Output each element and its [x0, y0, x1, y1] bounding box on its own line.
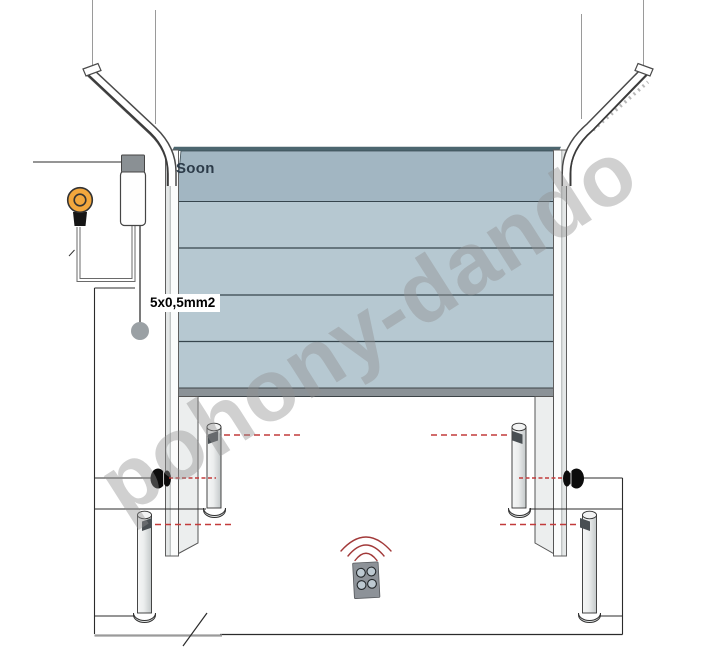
- wall-button: [131, 322, 149, 340]
- conduit-tick: [69, 250, 75, 256]
- radio-waves: [341, 537, 391, 561]
- right-curved-track: [567, 64, 654, 187]
- warning-lamp: [68, 188, 93, 226]
- photocell-post-lower-right: [579, 511, 601, 622]
- photocell-post-upper-left: [204, 423, 226, 517]
- ceiling-hanger-rods: [93, 0, 644, 124]
- drive-brand-label: Soon: [176, 160, 215, 177]
- lamp-lens-outer: [68, 188, 93, 213]
- motor-cap: [122, 155, 145, 172]
- door-top-edge: [172, 147, 561, 151]
- drive-motor-unit: [121, 155, 146, 226]
- photocell-post-lower-left: [134, 511, 156, 622]
- left-rail-side-face: [179, 397, 199, 554]
- lamp-conduit: [79, 225, 134, 280]
- wall-photocell-left: [151, 469, 172, 489]
- floor-break-slash: [183, 613, 207, 646]
- wall-photocell-right: [563, 469, 584, 489]
- lamp-base: [73, 212, 87, 226]
- remote-body: [353, 562, 380, 599]
- garage-door-installation-diagram: pohony-dando Soon 5x0,5mm2: [0, 0, 709, 648]
- remote-control: [353, 562, 380, 599]
- wiring: [69, 225, 140, 323]
- door-bottom-rail: [178, 388, 554, 397]
- diagram-canvas: [0, 0, 709, 648]
- right-rail-side-face: [535, 397, 554, 554]
- sectional-door: [172, 147, 561, 397]
- door-top-panel: [176, 151, 559, 202]
- motor-body: [121, 171, 146, 226]
- photocell-post-upper-right: [509, 423, 531, 517]
- cable-spec-label: 5x0,5mm2: [146, 294, 220, 312]
